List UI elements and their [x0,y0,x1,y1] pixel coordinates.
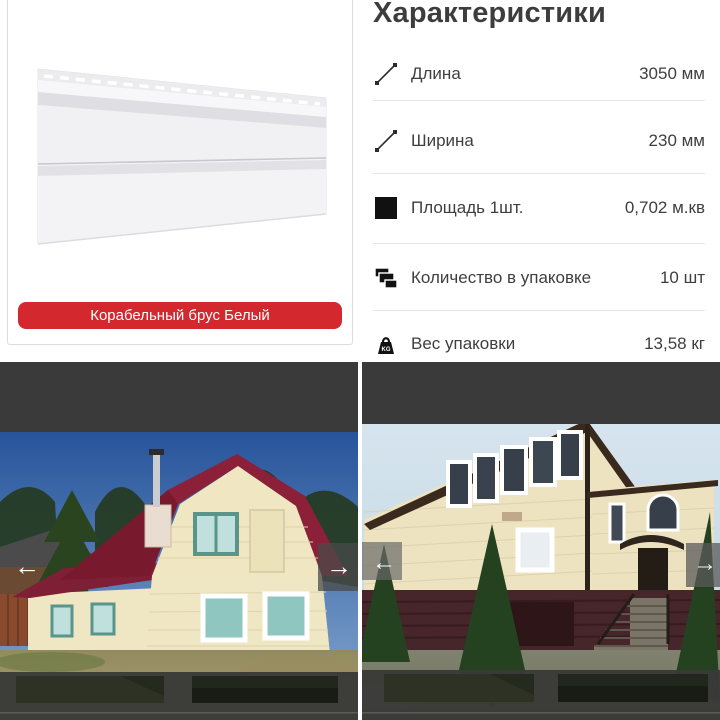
house-photo-1-image: ← → [0,362,358,720]
thumbnail-strip [0,672,358,720]
spec-value: 10 шт [660,268,705,288]
next-photo-button[interactable]: → [693,550,717,577]
row-separator [373,243,705,244]
svg-text:KG: KG [382,347,391,353]
specs-title: Характеристики [373,0,713,30]
spec-label: Ширина [411,131,649,151]
stacked-panels-icon [373,265,399,291]
weight-kg-icon: KG [373,331,399,357]
spec-value: 230 мм [649,131,705,151]
arched-window [648,495,678,530]
house-photo-2-image: ← → [362,362,720,720]
spec-value: 0,702 м.кв [625,198,705,218]
spec-row-weight: KG Вес упаковки 13,58 кг [373,326,705,362]
product-page: Корабельный брус Белый Характеристики Дл… [0,0,720,720]
prev-photo-button[interactable]: ← [14,551,40,581]
house-photo-2[interactable]: ← → [362,362,720,720]
siding-panel-image [8,0,354,295]
product-image-card: Корабельный брус Белый [7,0,353,345]
variant-select-button[interactable]: Корабельный брус Белый [18,302,342,329]
spec-value: 13,58 кг [644,334,705,354]
photo-top-bar [362,362,720,424]
row-separator [373,310,705,311]
next-photo-button[interactable]: → [326,551,352,581]
spec-row-quantity: Количество в упаковке 10 шт [373,260,705,296]
spec-row-width: Ширина 230 мм [373,123,705,159]
spec-row-area: Площадь 1шт. 0,702 м.кв [373,190,705,226]
house-photo-1[interactable]: ← → [0,362,358,720]
photo-top-bar [0,362,358,432]
spec-label: Длина [411,64,639,84]
thumbnail-strip [362,670,720,720]
spec-label: Вес упаковки [411,334,644,354]
row-separator [373,100,705,101]
spec-label: Количество в упаковке [411,268,660,288]
prev-photo-button[interactable]: ← [372,549,396,576]
row-separator [373,173,705,174]
spec-label: Площадь 1шт. [411,198,625,218]
diagonal-width-icon [373,128,399,154]
diagonal-length-icon [373,61,399,87]
filled-square-icon [373,195,399,221]
spec-value: 3050 мм [639,64,705,84]
spec-row-length: Длина 3050 мм [373,56,705,92]
photo-carousel: ← → [0,362,720,720]
